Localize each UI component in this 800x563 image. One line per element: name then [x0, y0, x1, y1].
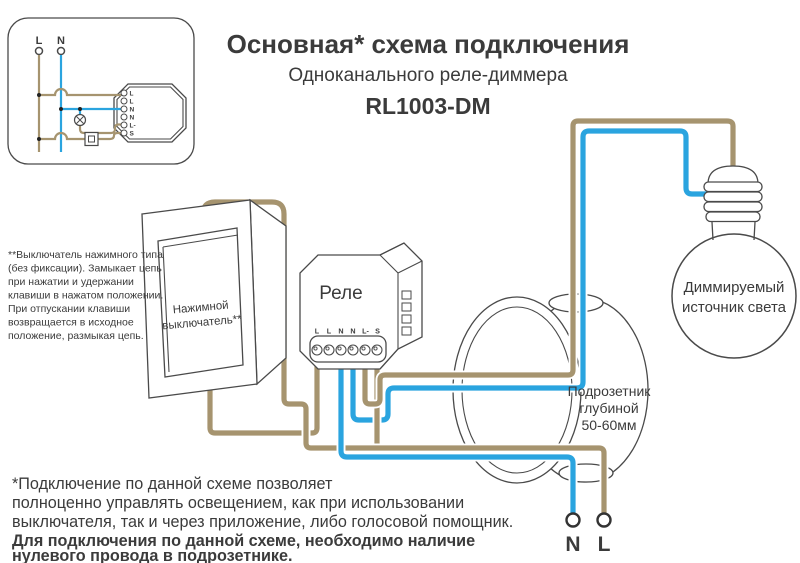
- relay-terminal-label: L: [315, 327, 320, 336]
- inset-l-label: L: [36, 35, 43, 47]
- title-block: Основная* схема подключения Одноканально…: [227, 29, 630, 119]
- bulb-label: источник света: [682, 299, 787, 316]
- inset-terminal-label: S: [130, 131, 135, 138]
- relay-terminal-label: L-: [362, 327, 369, 336]
- inset-n-terminal: [58, 48, 65, 55]
- inset-lamp-symbol: [75, 115, 86, 126]
- inset-terminal-label: N: [130, 115, 135, 122]
- svg-text:При отпускании клавиши: При отпускании клавиши: [8, 303, 130, 315]
- svg-text:**Выключатель нажимного типа: **Выключатель нажимного типа: [8, 249, 163, 261]
- inset-switch-symbol: [85, 133, 98, 146]
- mains-n-label: N: [565, 533, 580, 556]
- svg-text:клавиши в нажатом положении.: клавиши в нажатом положении.: [8, 290, 163, 302]
- model-number: RL1003-DM: [365, 93, 490, 119]
- junction-dot: [37, 137, 41, 141]
- svg-text:положение, размыкая цепь.: положение, размыкая цепь.: [8, 330, 144, 342]
- diagram-canvas: L N: [0, 0, 800, 563]
- mains-l-terminal: [598, 514, 611, 527]
- footnote: *Подключение по данной схеме позволяет п…: [12, 475, 513, 563]
- svg-text:Подрозетник: Подрозетник: [568, 383, 652, 399]
- svg-text:выключателя, так и через прило: выключателя, так и через приложение, либ…: [12, 513, 513, 531]
- relay-vent: [402, 303, 411, 311]
- inset-schematic: L N: [8, 18, 194, 164]
- inset-terminal-label: L: [130, 91, 134, 98]
- relay-module: Реле L L N N L- S: [300, 243, 422, 369]
- bulb-label: Диммируемый: [684, 279, 785, 296]
- relay-label: Реле: [319, 283, 362, 304]
- svg-text:полноценно управлять освещение: полноценно управлять освещением, как при…: [12, 494, 464, 512]
- relay-vent: [402, 327, 411, 335]
- mains-l-label: L: [598, 533, 611, 556]
- svg-text:глубиной: глубиной: [579, 400, 638, 416]
- relay-terminal-label: L: [327, 327, 332, 336]
- push-switch: Нажимной выключатель**: [142, 200, 286, 398]
- relay-terminal-label: S: [375, 327, 380, 336]
- relay-vent: [402, 291, 411, 299]
- junction-dot: [78, 107, 82, 111]
- inset-n-label: N: [57, 35, 65, 47]
- page-subtitle: Одноканального реле-диммера: [288, 65, 568, 86]
- mains-terminals: N L: [565, 514, 610, 557]
- relay-terminal-label: N: [338, 327, 343, 336]
- relay-terminal-label: N: [350, 327, 355, 336]
- switch-note: **Выключатель нажимного типа (без фиксац…: [8, 249, 163, 342]
- svg-text:нулевого провода в подрозетник: нулевого провода в подрозетнике.: [12, 547, 293, 563]
- inset-terminal-label: L: [130, 99, 134, 106]
- inset-l-terminal: [36, 48, 43, 55]
- junction-dot: [37, 93, 41, 97]
- svg-text:возвращается в исходное: возвращается в исходное: [8, 317, 134, 329]
- svg-text:(без фиксации). Замыкает цепь: (без фиксации). Замыкает цепь: [8, 263, 162, 275]
- svg-text:при нажатии и удержании: при нажатии и удержании: [8, 276, 134, 288]
- wiring-diagram-page: L N: [0, 0, 800, 563]
- relay-vent: [402, 315, 411, 323]
- svg-text:50-60мм: 50-60мм: [581, 417, 636, 433]
- page-title: Основная* схема подключения: [227, 29, 630, 59]
- mains-n-terminal: [567, 514, 580, 527]
- junction-dot: [59, 107, 63, 111]
- svg-text:*Подключение по данной схеме п: *Подключение по данной схеме позволяет: [12, 475, 333, 493]
- inset-terminal-label: N: [130, 107, 135, 114]
- inset-terminal-label: L-: [130, 123, 136, 130]
